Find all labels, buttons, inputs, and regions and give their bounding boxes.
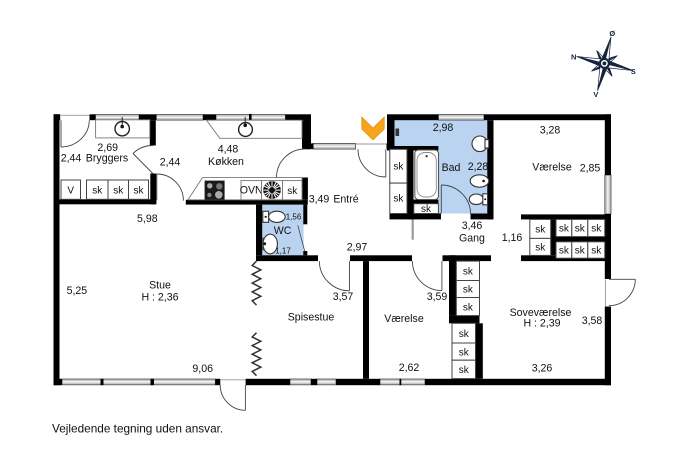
svg-text:1,17: 1,17 (275, 246, 291, 255)
svg-text:3,46: 3,46 (462, 220, 483, 232)
svg-text:sk: sk (575, 246, 586, 257)
svg-text:sk: sk (459, 365, 470, 376)
svg-text:2,44: 2,44 (61, 153, 82, 165)
svg-text:V: V (67, 186, 74, 197)
svg-text:1,16: 1,16 (502, 232, 523, 244)
svg-text:Vejledende tegning uden ansvar: Vejledende tegning uden ansvar. (52, 422, 223, 436)
svg-text:sk: sk (591, 246, 602, 257)
svg-text:2,62: 2,62 (399, 362, 420, 374)
svg-text:Bryggers: Bryggers (86, 153, 128, 165)
svg-text:WC: WC (274, 225, 292, 237)
svg-text:sk: sk (134, 186, 145, 197)
svg-text:Ø: Ø (609, 29, 615, 38)
svg-text:sk: sk (591, 224, 602, 235)
svg-text:sk: sk (287, 186, 298, 197)
svg-text:Spisestue: Spisestue (288, 311, 335, 323)
svg-text:sk: sk (463, 303, 474, 314)
svg-text:1,56: 1,56 (286, 212, 302, 221)
svg-text:2,97: 2,97 (347, 242, 368, 254)
svg-text:sk: sk (393, 194, 404, 205)
svg-text:Køkken: Køkken (208, 156, 244, 168)
svg-text:2,44: 2,44 (160, 157, 181, 169)
svg-text:sk: sk (463, 267, 474, 278)
svg-text:Bad: Bad (442, 162, 461, 174)
svg-text:sk: sk (535, 225, 546, 236)
svg-text:2,98: 2,98 (433, 122, 454, 134)
svg-text:sk: sk (421, 204, 432, 215)
svg-text:3,58: 3,58 (582, 315, 603, 327)
svg-text:sk: sk (559, 224, 570, 235)
svg-text:H : 2,39: H : 2,39 (523, 317, 560, 329)
svg-text:V: V (593, 90, 598, 99)
svg-text:sk: sk (393, 162, 404, 173)
svg-text:5,25: 5,25 (67, 285, 88, 297)
svg-text:3,57: 3,57 (333, 291, 354, 303)
svg-text:sk: sk (113, 186, 124, 197)
svg-text:sk: sk (463, 285, 474, 296)
svg-text:9,06: 9,06 (192, 363, 213, 375)
svg-text:Værelse: Værelse (384, 313, 424, 325)
svg-text:4,48: 4,48 (218, 143, 239, 155)
svg-text:S: S (631, 67, 636, 76)
svg-text:Stue: Stue (149, 279, 171, 291)
svg-text:3,59: 3,59 (427, 291, 448, 303)
svg-text:sk: sk (92, 186, 103, 197)
svg-text:2,28: 2,28 (468, 161, 489, 173)
svg-text:sk: sk (559, 246, 570, 257)
svg-text:sk: sk (459, 329, 470, 340)
svg-text:Værelse: Værelse (532, 161, 572, 173)
svg-text:OVN: OVN (240, 185, 263, 197)
svg-text:sk: sk (575, 224, 586, 235)
svg-text:Gang: Gang (459, 232, 485, 244)
svg-text:sk: sk (459, 348, 470, 359)
svg-text:Entré: Entré (333, 193, 358, 205)
svg-text:N: N (571, 52, 576, 61)
svg-text:H : 2,36: H : 2,36 (141, 291, 178, 303)
svg-text:3,28: 3,28 (540, 124, 561, 136)
svg-text:sk: sk (535, 243, 546, 254)
svg-text:3,49: 3,49 (309, 193, 330, 205)
svg-text:2,85: 2,85 (580, 162, 601, 174)
svg-text:5,98: 5,98 (137, 213, 158, 225)
svg-text:3,26: 3,26 (532, 362, 553, 374)
